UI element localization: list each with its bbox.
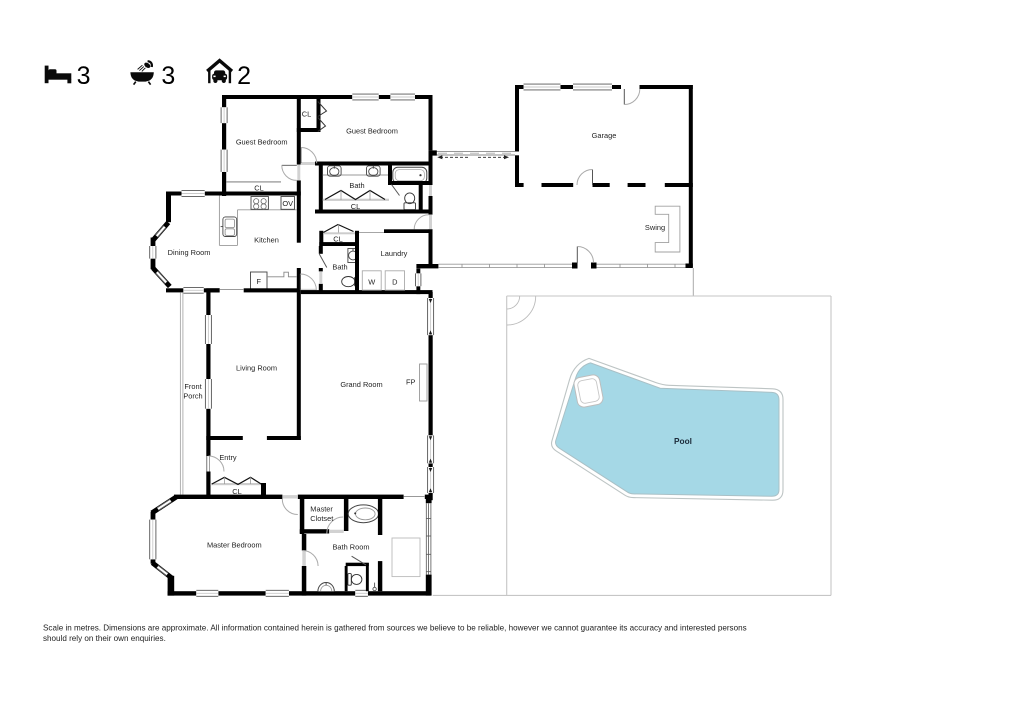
svg-text:Grand Room: Grand Room: [340, 380, 382, 389]
svg-text:Entry: Entry: [219, 453, 237, 462]
svg-text:Living Room: Living Room: [236, 363, 277, 372]
svg-text:Master: Master: [310, 504, 333, 513]
svg-text:Front: Front: [184, 382, 201, 391]
svg-text:Guest Bedroom: Guest Bedroom: [236, 138, 288, 147]
svg-text:should rely on their own enqui: should rely on their own enquiries.: [43, 634, 166, 643]
svg-text:Bath: Bath: [349, 181, 364, 190]
svg-text:Pool: Pool: [674, 436, 692, 446]
svg-text:Scale in metres. Dimensions ar: Scale in metres. Dimensions are approxim…: [43, 624, 747, 633]
svg-text:Garage: Garage: [592, 131, 617, 140]
svg-text:F: F: [256, 277, 261, 286]
svg-text:CL: CL: [333, 234, 342, 243]
svg-text:OV: OV: [282, 199, 293, 208]
svg-text:Master Bedroom: Master Bedroom: [207, 541, 262, 550]
svg-text:Laundry: Laundry: [381, 249, 408, 258]
svg-text:Dining Room: Dining Room: [168, 248, 211, 257]
svg-text:3: 3: [161, 62, 175, 90]
svg-text:CL: CL: [254, 183, 263, 192]
svg-text:CL: CL: [302, 110, 311, 119]
svg-text:Guest Bedroom: Guest Bedroom: [346, 127, 398, 136]
svg-text:D: D: [392, 277, 397, 286]
svg-text:Bath Room: Bath Room: [333, 542, 370, 551]
svg-text:Kitchen: Kitchen: [254, 235, 279, 244]
svg-text:Bath: Bath: [332, 262, 347, 271]
svg-text:Porch: Porch: [183, 392, 202, 401]
svg-text:Clotset: Clotset: [310, 514, 333, 523]
svg-text:FP: FP: [406, 377, 416, 386]
svg-text:2: 2: [237, 62, 251, 90]
svg-text:W: W: [368, 277, 375, 286]
svg-text:Swing: Swing: [645, 223, 665, 232]
svg-text:3: 3: [77, 62, 91, 90]
